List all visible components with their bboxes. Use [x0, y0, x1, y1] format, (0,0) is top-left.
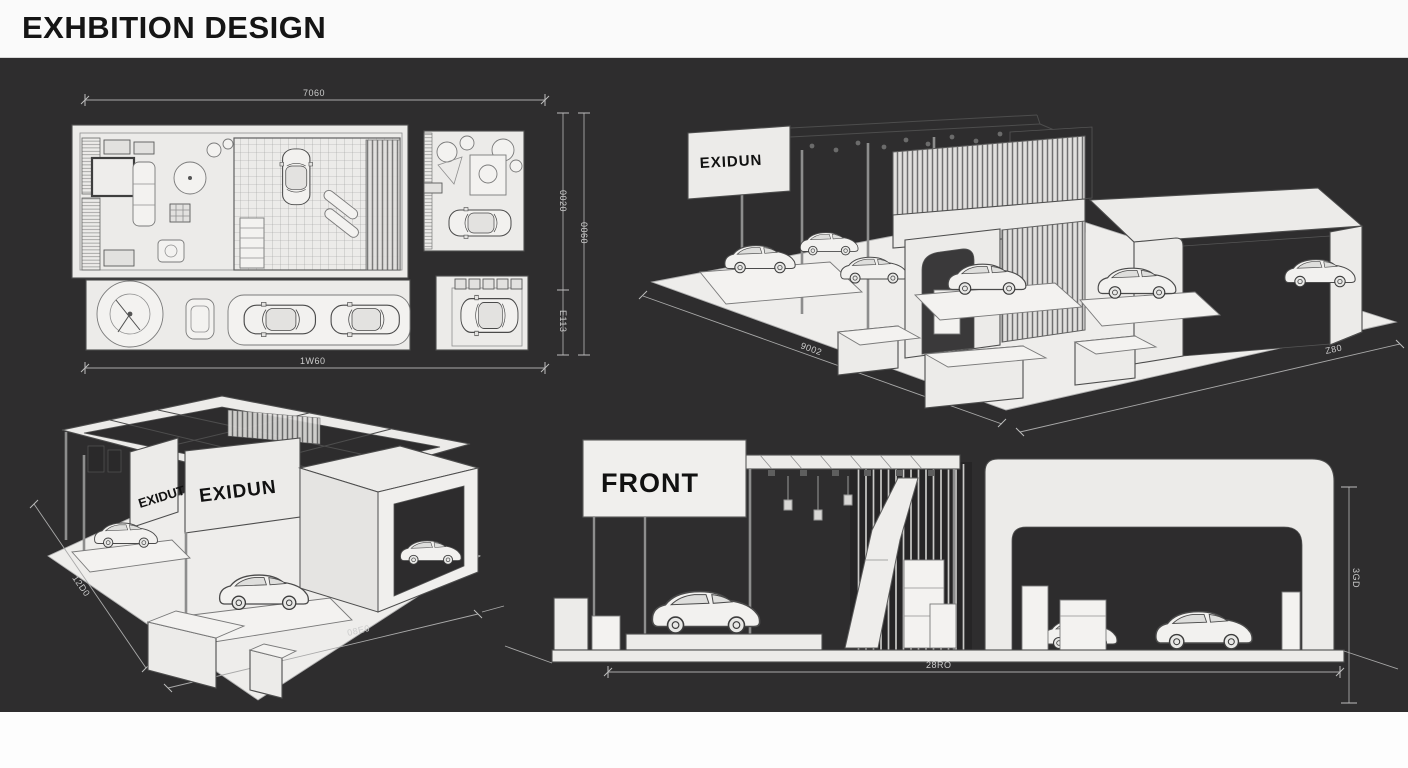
car-drawing [725, 246, 795, 273]
dimension-label: 7060 [303, 88, 325, 98]
front-elevation-view: FRONT 28RO 3GD [505, 440, 1398, 703]
car-top-drawing [331, 302, 399, 336]
pendant-lamp-icons [784, 476, 852, 520]
car-top-drawing [280, 149, 313, 205]
dimension-label: 0060 [579, 222, 589, 244]
car-top-drawing [244, 302, 315, 336]
design-board-canvas: 7060 1W60 0020 E113 0060 [0, 0, 1408, 768]
dimension-label: 3GD [1351, 568, 1361, 588]
floor-plan-view: 7060 1W60 0020 E113 0060 [72, 88, 590, 374]
car-drawing [800, 233, 858, 255]
iso-view-alt: 12D0 08E0 EXIDUT EXIDUN [30, 396, 504, 700]
front-view-label: FRONT [601, 468, 699, 498]
car-top-drawing [449, 208, 511, 239]
car-top-drawing [461, 295, 518, 335]
dimension-label: 28RO [926, 660, 952, 670]
exidut-sign [130, 438, 178, 528]
iso-view-main: 9002 Z80 EXIDUN [639, 115, 1404, 436]
car-drawing [652, 592, 759, 634]
dimension-label: 1W60 [300, 356, 326, 366]
exidun-sign-label: EXIDUN [699, 152, 762, 172]
slide-footer [0, 712, 1408, 768]
dimension-label: 0020 [558, 190, 568, 212]
dimension-label: E113 [558, 310, 568, 332]
